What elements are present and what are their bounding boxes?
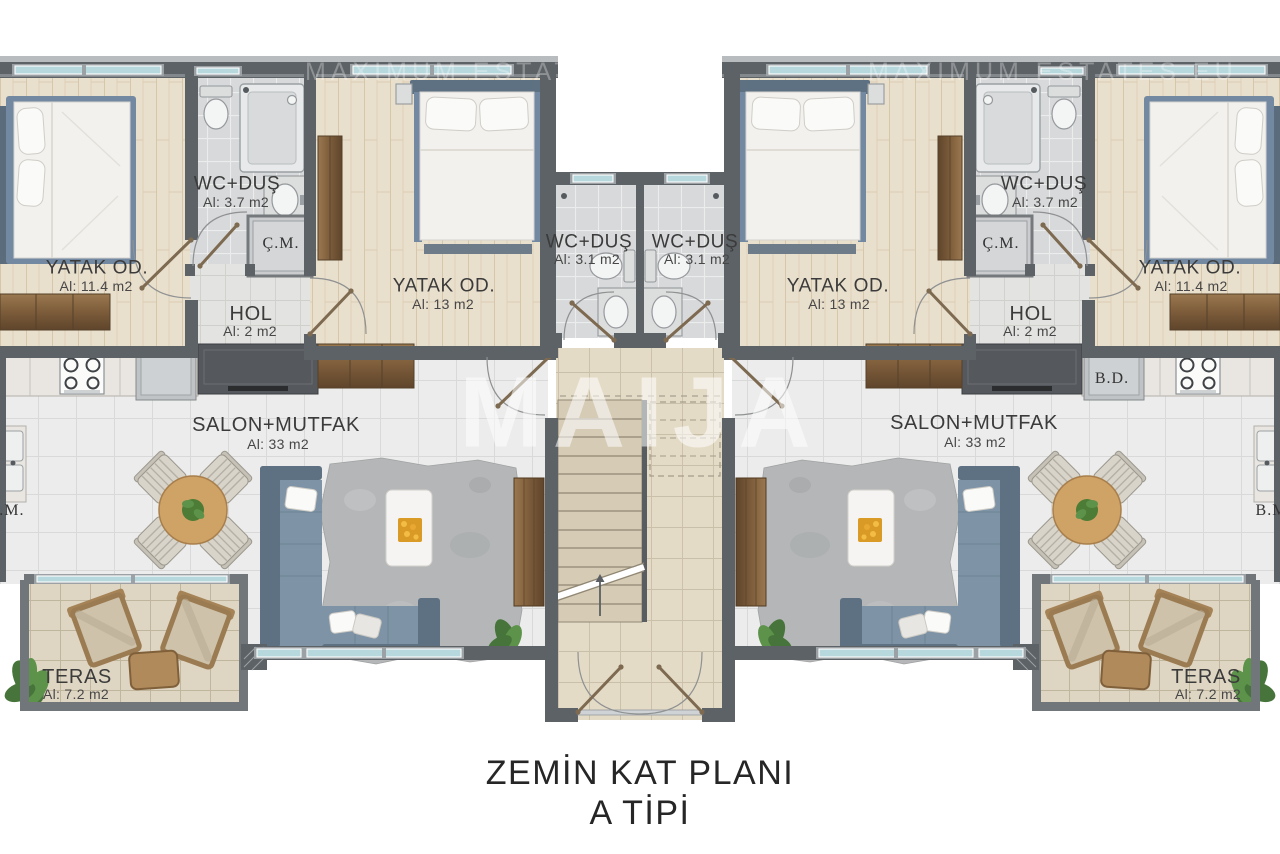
room-label: HOL (1010, 304, 1053, 324)
appliance-label: B.M. (1256, 503, 1280, 519)
room-label: TERAS (1171, 667, 1241, 687)
room-area: Al: 11.4 m2 (59, 279, 132, 293)
room-area: Al: 3.1 m2 (664, 252, 730, 266)
appliance-label: B.D. (1095, 371, 1129, 387)
room-label: WC+DUŞ (194, 175, 280, 194)
room-area: Al: 3.1 m2 (554, 252, 620, 266)
room-label: WC+DUŞ (1001, 175, 1087, 194)
watermark-top-left: MAXIMUM ESTATES EU (305, 58, 675, 87)
room-label: WC+DUŞ (652, 233, 738, 252)
closet-label: Ç.M. (983, 236, 1020, 252)
room-area: Al: 7.2 m2 (1175, 687, 1241, 701)
plan-title-line1: ZEMİN KAT PLANI (0, 753, 1280, 793)
room-area: Al: 7.2 m2 (43, 687, 109, 701)
room-label: YATAK OD. (393, 277, 496, 296)
room-label: TERAS (42, 667, 112, 687)
room-area: Al: 3.7 m2 (203, 195, 269, 209)
room-area: Al: 11.4 m2 (1154, 279, 1227, 293)
watermark-center: MAIJA (459, 356, 820, 471)
room-area: Al: 3.7 m2 (1012, 195, 1078, 209)
room-area: Al: 33 m2 (247, 437, 309, 451)
room-label: SALON+MUTFAK (890, 413, 1058, 433)
appliance-label: B.M. (0, 503, 24, 519)
room-area: Al: 13 m2 (412, 297, 474, 311)
room-label: SALON+MUTFAK (192, 415, 360, 435)
room-area: Al: 2 m2 (1003, 324, 1057, 338)
room-label: YATAK OD. (787, 277, 890, 296)
room-label: HOL (230, 304, 273, 324)
room-area: Al: 13 m2 (808, 297, 870, 311)
plan-title: ZEMİN KAT PLANI A TİPİ (0, 753, 1280, 833)
room-area: Al: 33 m2 (944, 435, 1006, 449)
room-label: YATAK OD. (1139, 259, 1242, 278)
floor-plan-image: MAXIMUM ESTATES EU MAXIMUM ESTATES EU MA… (0, 0, 1280, 854)
watermark-top-right: MAXIMUM ESTATES EU (868, 58, 1238, 87)
plan-title-line2: A TİPİ (0, 793, 1280, 833)
room-label: YATAK OD. (46, 259, 149, 278)
closet-label: Ç.M. (263, 236, 300, 252)
room-label: WC+DUŞ (546, 233, 632, 252)
room-area: Al: 2 m2 (223, 324, 277, 338)
